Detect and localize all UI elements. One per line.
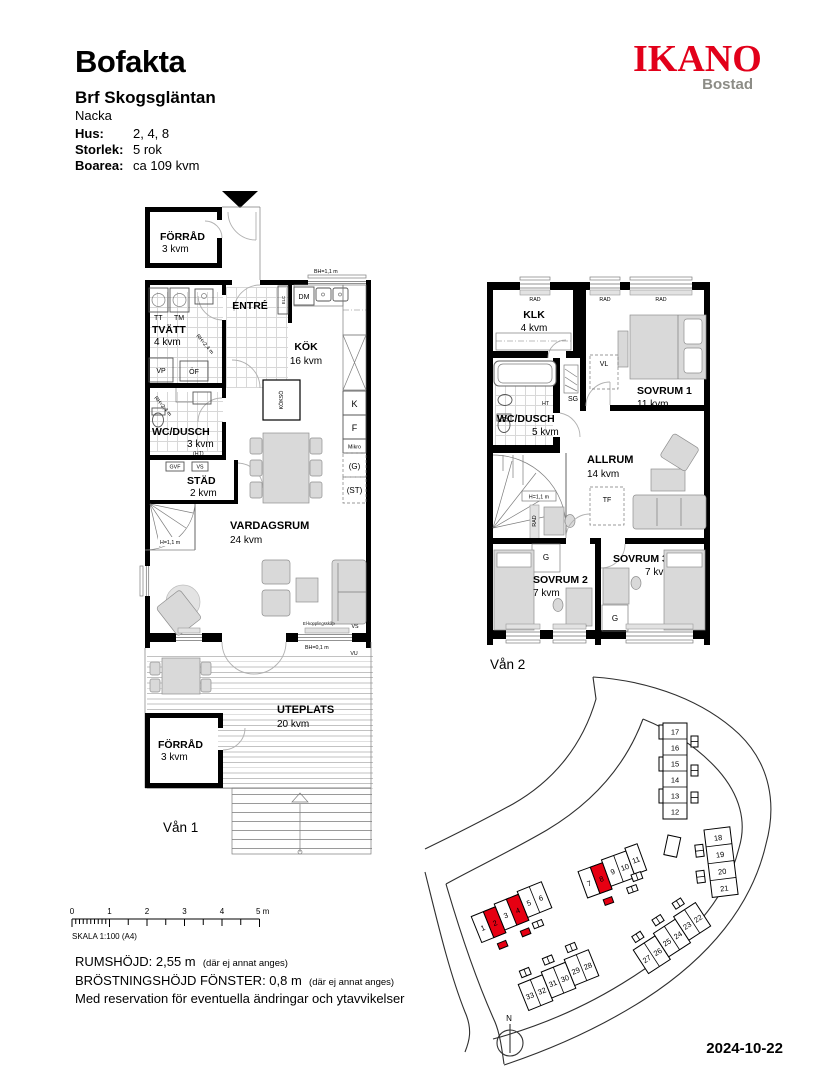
- unit-number: 18: [713, 833, 722, 843]
- room-height-note-paren: (där ej annat anges): [203, 958, 288, 969]
- rad-label: RAD: [532, 515, 538, 526]
- ht-label: HT: [542, 401, 550, 407]
- garderob-label: (G): [349, 462, 361, 471]
- room-label: SOVRUM 3: [613, 553, 668, 565]
- floorplan-van1: FÖRRÅD 3 kvm: [138, 188, 378, 863]
- footer-line2: BRÖSTNINGSHÖJD FÖNSTER: 0,8 m (där ej an…: [75, 973, 405, 992]
- room-label: UTEPLATS: [277, 704, 334, 716]
- room-area: 3 kvm: [187, 439, 214, 450]
- room-entre: ELC ENTRÉ: [232, 285, 292, 388]
- garderob-label: G: [543, 553, 549, 562]
- room-label: ENTRÉ: [232, 299, 268, 312]
- sill-height-note-paren: (där ej annat anges): [309, 977, 394, 988]
- room-stad: GVF VS STÄD 2 kvm: [145, 460, 263, 504]
- room-area: 4 kvm: [154, 337, 181, 348]
- room-area: 5 kvm: [532, 427, 559, 438]
- room-label: ALLRUM: [587, 454, 633, 466]
- fact-boarea-label: Boarea:: [75, 158, 133, 174]
- vs-label: VS: [351, 624, 359, 630]
- vl-label: VL: [600, 361, 609, 368]
- unit-number: 20: [718, 867, 727, 877]
- scale-tick: 2: [145, 907, 150, 916]
- of-label: ÖF: [189, 368, 199, 376]
- room-label: FÖRRÅD: [160, 230, 205, 243]
- footer-line3: Med reservation för eventuella ändringar…: [75, 991, 405, 1008]
- room-wc-dusch-2: HT WC/DUSCH 5 kvm: [493, 358, 580, 453]
- stair-height-note: H=1,1 m: [529, 495, 550, 501]
- tt-label: TT: [154, 315, 163, 322]
- sill-height-note: BRÖSTNINGSHÖJD FÖNSTER: 0,8 m: [75, 973, 302, 988]
- room-label: WC/DUSCH: [497, 413, 555, 425]
- room-label: SOVRUM 1: [637, 385, 692, 397]
- room-label: FÖRRÅD: [158, 738, 203, 751]
- tm-label: TM: [174, 315, 184, 322]
- scale-tick: 5 m: [256, 907, 270, 916]
- unit-number: 16: [671, 744, 679, 753]
- stad-prep-label: (ST): [347, 486, 363, 495]
- vs-cabinet-label: VS: [196, 465, 204, 471]
- room-label: SOVRUM 2: [533, 574, 588, 586]
- unit-number: 13: [671, 792, 679, 801]
- room-vardagsrum: VARDAGSRUM 24 kvm El-kopplingsskåp VS: [156, 433, 366, 636]
- room-height-note: RUMSHÖJD: 2,55 m: [75, 954, 196, 969]
- dm-label: DM: [299, 294, 310, 301]
- vp-label: VP: [156, 368, 166, 375]
- scale-tick: 3: [182, 907, 187, 916]
- unit-number: 12: [671, 808, 679, 817]
- city-label: Nacka: [75, 108, 112, 123]
- elc-label: ELC: [281, 296, 286, 304]
- room-area: 11 kvm: [637, 399, 669, 410]
- bh-low-note: BH=0,1 m: [305, 645, 329, 651]
- unit-number: 14: [671, 776, 679, 785]
- tf-label: TF: [603, 497, 612, 504]
- room-label: KLK: [523, 309, 545, 321]
- fact-hus: Hus: 2, 4, 8: [75, 126, 199, 142]
- scale-tick: 1: [107, 907, 112, 916]
- room-area: 20 kvm: [277, 719, 309, 730]
- room-klk: RAD KLK 4 kvm: [493, 290, 580, 358]
- entrance-arrow-icon: [222, 191, 258, 208]
- room-label: KÖK: [294, 340, 318, 353]
- footer-line1: RUMSHÖJD: 2,55 m (där ej annat anges): [75, 954, 405, 973]
- window-height-note: BH=1,1 m: [314, 269, 338, 275]
- building-block-12-17: 17 16 15 14 13 12: [659, 723, 698, 819]
- vu-label: VU: [350, 651, 358, 657]
- rad-label: RAD: [529, 297, 540, 303]
- room-label: WC/DUSCH: [152, 426, 210, 438]
- rad-label: RAD: [655, 297, 666, 303]
- room-forrad-top: FÖRRÅD 3 kvm: [145, 207, 222, 268]
- room-area: 24 kvm: [230, 535, 262, 546]
- fact-hus-label: Hus:: [75, 126, 133, 142]
- fact-storlek: Storlek: 5 rok: [75, 142, 199, 158]
- unit-number: 19: [715, 850, 724, 860]
- north-compass: N: [497, 1014, 523, 1056]
- room-sovrum1: RAD RAD VL SOVRUM 1 11 kvm: [580, 290, 710, 411]
- project-name: Brf Skogsgläntan: [75, 88, 216, 108]
- scale-ruler: [72, 919, 260, 927]
- gvf-label: GVF: [170, 465, 182, 471]
- room-label: STÄD: [187, 474, 216, 487]
- el-note: El-kopplingsskåp: [303, 621, 335, 626]
- stairs-van2: H=1,1 m RAD: [493, 453, 575, 539]
- fact-storlek-label: Storlek:: [75, 142, 133, 158]
- page-title: Bofakta: [75, 44, 185, 80]
- rad-label: RAD: [599, 297, 610, 303]
- building-block-18-21: 18 19 20 21: [691, 827, 738, 899]
- room-label: TVÄTT: [152, 323, 186, 336]
- fact-list: Hus: 2, 4, 8 Storlek: 5 rok Boarea: ca 1…: [75, 126, 199, 174]
- document-date: 2024-10-22: [683, 1040, 783, 1057]
- room-area: 7 kvm: [533, 588, 560, 599]
- kyl-label: K: [351, 399, 357, 409]
- scale-tick: 4: [220, 907, 225, 916]
- floor2-label: Vån 2: [490, 657, 525, 672]
- room-area: 3 kvm: [162, 244, 189, 255]
- site-plan: 1 2 3 4 5 6 7 8 9 10 11 1: [425, 672, 837, 1072]
- room-allrum: ALLRUM 14 kvm TF: [587, 433, 706, 529]
- room-area: 16 kvm: [290, 356, 322, 367]
- ceiling-height-note: RH=2,4 m: [194, 333, 214, 356]
- bofakta-page: Bofakta Brf Skogsgläntan Nacka Hus: 2, 4…: [0, 0, 840, 1080]
- landing-van2: SG: [564, 365, 578, 403]
- scale-label: SKALA 1:100 (A4): [72, 932, 137, 941]
- room-area: 4 kvm: [521, 323, 548, 334]
- scale-tick: 0: [70, 907, 75, 916]
- room-tvatt: TT TM TVÄTT 4 kvm RH=2,4 m VP ÖF: [145, 285, 226, 388]
- entry-porch: [222, 207, 260, 280]
- room-sovrum2: G SOVRUM 2 7 kvm RAD RAD: [494, 544, 592, 630]
- room-forrad-bottom: FÖRRÅD 3 kvm: [145, 713, 245, 788]
- building-row-22-27: 27 26 25 24 23 22: [623, 892, 713, 973]
- stairs-van1: H=1,1 m: [145, 504, 195, 550]
- room-area: 3 kvm: [161, 752, 188, 763]
- frys-label: F: [352, 423, 358, 433]
- unit-number: 17: [671, 728, 679, 737]
- room-area: 14 kvm: [587, 469, 619, 480]
- room-area: 2 kvm: [190, 488, 217, 499]
- small-outbuilding: [664, 835, 681, 857]
- ikano-logo: IKANO Bostad: [633, 42, 763, 93]
- ikano-wordmark: IKANO: [633, 42, 763, 76]
- fact-boarea-value: ca 109 kvm: [133, 158, 199, 174]
- reservation-note: Med reservation för eventuella ändringar…: [75, 991, 405, 1006]
- north-label: N: [506, 1014, 512, 1023]
- unit-number: 15: [671, 760, 679, 769]
- building-row-1-6: 1 2 3 4 5 6: [469, 882, 559, 955]
- room-label: VARDAGSRUM: [230, 520, 309, 532]
- garderob-label: G: [612, 614, 618, 623]
- sg-label: SG: [568, 396, 578, 403]
- kokso-label: KÖKSÖ: [278, 391, 285, 410]
- fact-storlek-value: 5 rok: [133, 142, 162, 158]
- scale-bar: 0 1 2 3 4 5 m SKALA 1:100 (A4): [70, 905, 295, 955]
- floorplan-van2: RAD KLK 4 kvm RAD RAD VL SOVRUM 1 11 kvm: [478, 273, 718, 683]
- fact-boarea: Boarea: ca 109 kvm: [75, 158, 199, 174]
- room-wc-dusch-1: RH=2,4 m WC/DUSCH 3 kvm (HT): [145, 388, 226, 460]
- exterior-stairs: [232, 788, 371, 854]
- room-sovrum3: SOVRUM 3 7 kvm G RAD: [602, 550, 705, 631]
- floor1-label: Vån 1: [163, 820, 198, 835]
- mikro-label: Mikro: [348, 445, 361, 451]
- unit-number: 21: [720, 883, 729, 893]
- footer-notes: RUMSHÖJD: 2,55 m (där ej annat anges) BR…: [75, 954, 405, 1008]
- stair-height-note: H=1,1 m: [160, 540, 181, 546]
- fact-hus-value: 2, 4, 8: [133, 126, 169, 142]
- building-row-28-33: 33 32 31 30 29 28: [512, 939, 602, 1011]
